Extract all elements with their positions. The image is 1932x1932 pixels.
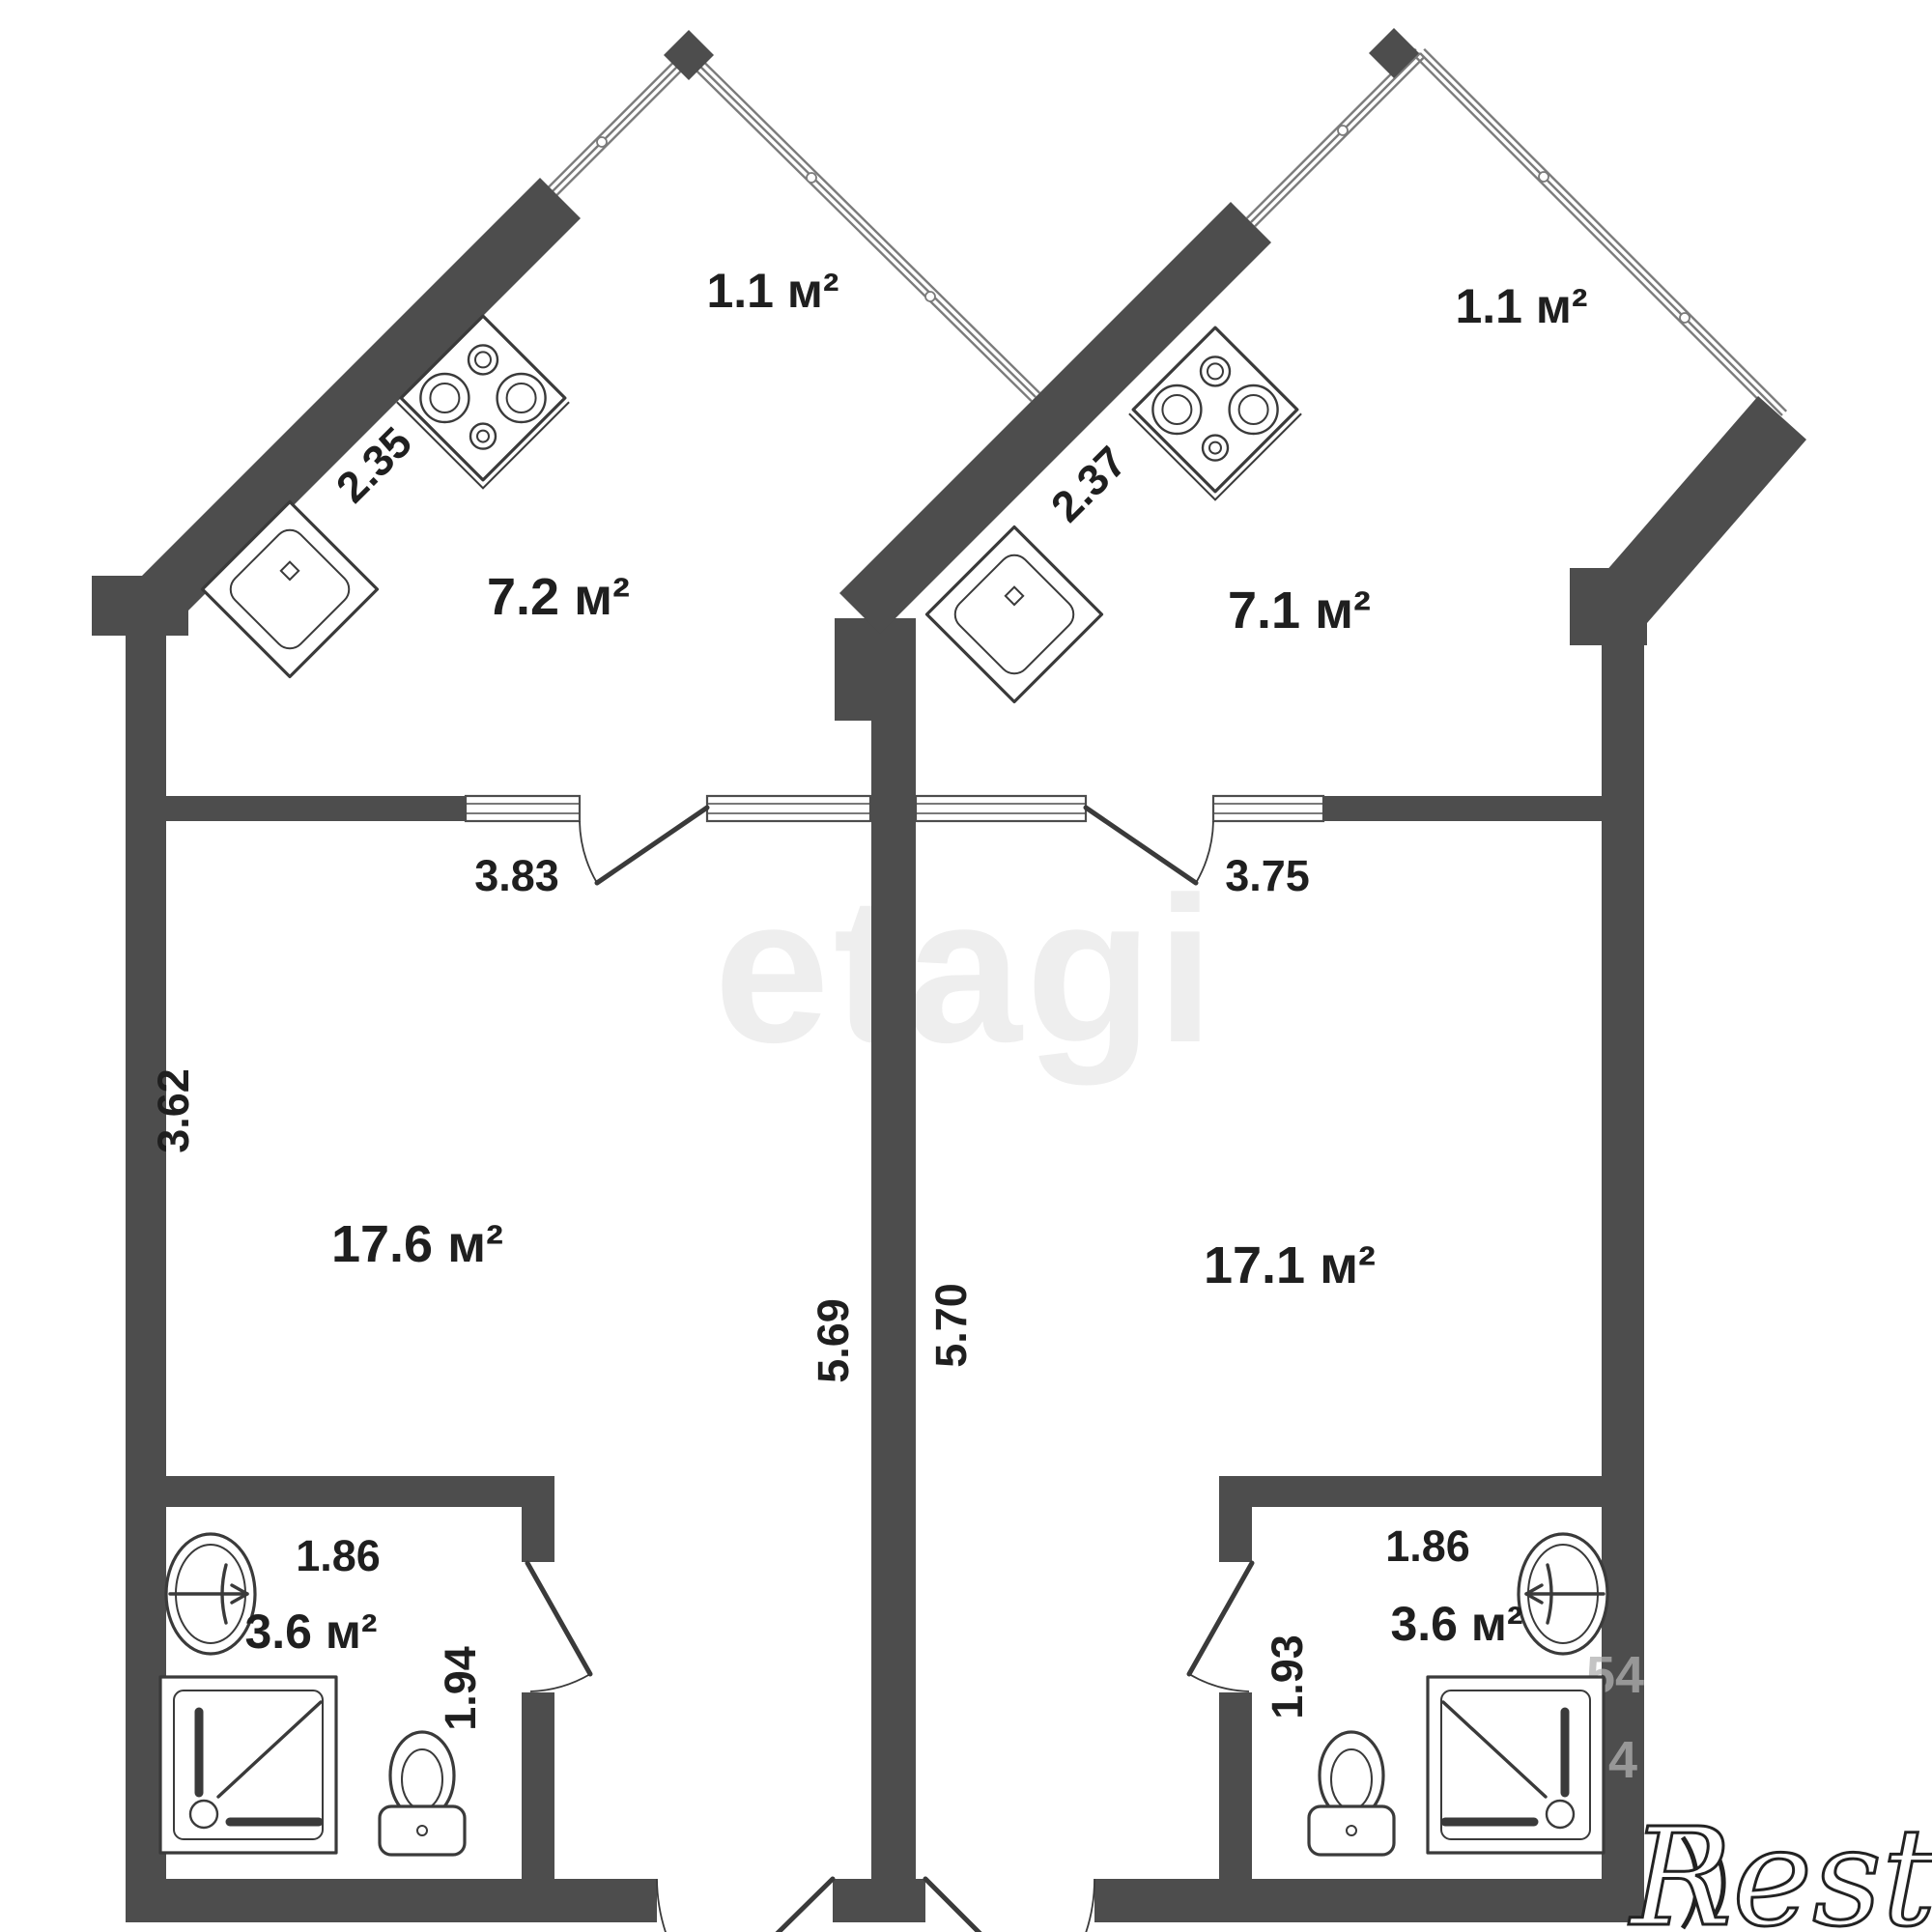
wall-central (871, 618, 916, 1922)
wall-bottom-left (126, 1879, 657, 1922)
washbasin-icon-right (1519, 1534, 1607, 1654)
watermark-etagi: etagi (714, 853, 1218, 1086)
washbasin-icon-left (166, 1534, 255, 1654)
wall-right-bath-top (1219, 1476, 1644, 1507)
wall-right-bath-stub (1219, 1476, 1252, 1562)
label-living-area-left: 17.6 м² (331, 1215, 503, 1273)
wall-left-bath-top (126, 1476, 554, 1507)
dim-bathroom-depth-left: 1.94 (436, 1646, 485, 1731)
floor-plan-page: etagi (0, 0, 1932, 1932)
wall-left-bath-lower (522, 1692, 554, 1879)
dim-living-depth-left: 5.69 (809, 1298, 858, 1383)
label-kitchen-area-right: 7.1 м² (1228, 582, 1371, 639)
dim-living-width-left: 3.62 (149, 1068, 198, 1153)
label-balcony-area-right: 1.1 м² (1455, 279, 1587, 333)
shower-icon-left (160, 1677, 336, 1853)
floor-plan: etagi (0, 0, 1932, 1932)
svg-text:Restate: Restate (1628, 1800, 1932, 1932)
dim-kitchen-width-right: 3.75 (1225, 851, 1310, 900)
wall-right-outer (1602, 580, 1644, 1922)
dim-bathroom-width-right: 1.86 (1385, 1521, 1470, 1571)
label-balcony-area-left: 1.1 м² (706, 264, 838, 318)
wall-left-bath-stub (522, 1476, 554, 1562)
dim-bathroom-depth-right: 1.93 (1263, 1634, 1312, 1719)
wall-left-partition-solid (166, 796, 466, 821)
watermark-restate: Restate (1628, 1800, 1932, 1932)
wall-central-nub (835, 618, 916, 721)
label-bathroom-area-left: 3.6 м² (244, 1605, 377, 1659)
label-kitchen-area-left: 7.2 м² (487, 568, 630, 626)
wall-right-bath-lower (1219, 1692, 1252, 1879)
wall-right-partition-solid (1323, 796, 1602, 821)
dim-bathroom-width-left: 1.86 (296, 1531, 381, 1580)
shower-icon-right (1428, 1677, 1604, 1853)
dim-living-depth-right: 5.70 (926, 1283, 976, 1368)
label-bathroom-area-right: 3.6 м² (1390, 1597, 1522, 1651)
faint-digits-watermark-2: 4 (1608, 1731, 1637, 1789)
label-living-area-right: 17.1 м² (1204, 1236, 1376, 1294)
wall-bottom-central-stub (833, 1879, 925, 1922)
dim-kitchen-width-left: 3.83 (474, 851, 559, 900)
wall-bottom-right (1094, 1879, 1644, 1922)
